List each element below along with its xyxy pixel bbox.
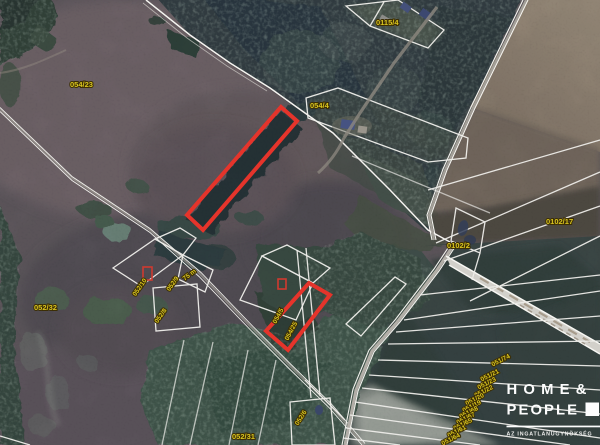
svg-text:0102/17: 0102/17 [546,217,573,226]
svg-text:0115/4: 0115/4 [376,18,399,27]
svg-text:052/31: 052/31 [232,432,255,441]
svg-text:052/32: 052/32 [34,303,57,312]
svg-text:AZ INGATLANÜGYNÖKSÉG: AZ INGATLANÜGYNÖKSÉG [507,429,593,437]
svg-text:PEOPLE: PEOPLE [507,403,580,419]
svg-text:054/4: 054/4 [310,101,330,110]
svg-text:0102/2: 0102/2 [447,241,470,250]
svg-text:054/23: 054/23 [70,80,93,89]
svg-text:HOME&: HOME& [507,382,593,398]
